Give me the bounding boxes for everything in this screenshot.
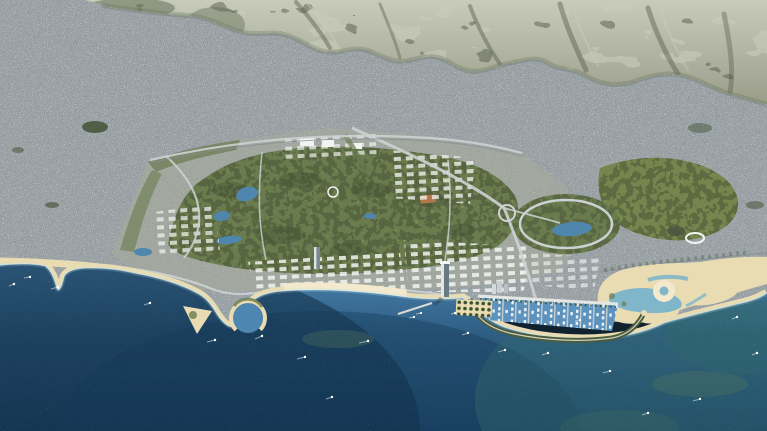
- cove-water: [233, 303, 263, 333]
- lagoon-pond: [660, 287, 669, 296]
- high-rise: [497, 281, 502, 293]
- arena-oval: [667, 226, 685, 236]
- lake: [134, 248, 152, 256]
- tree-cluster: [688, 123, 712, 133]
- tree-cluster: [82, 121, 108, 133]
- high-rise: [492, 284, 496, 294]
- tree-cluster: [746, 201, 764, 209]
- lake: [364, 213, 376, 219]
- scene-canvas: [0, 0, 767, 431]
- tree-cluster: [45, 202, 59, 208]
- tree-cluster: [12, 147, 24, 153]
- tree-cluster: [189, 311, 197, 319]
- tree-cluster: [609, 293, 615, 299]
- tree-cluster: [350, 182, 390, 198]
- riviera-tower-cap: [440, 261, 450, 264]
- aerial-render-coastal-masterplan: [0, 0, 767, 431]
- waterfront-tree-plaza: [456, 299, 493, 317]
- tower-lit-face: [314, 247, 316, 269]
- tree-cluster: [278, 172, 322, 188]
- commercial-blocks: [390, 150, 476, 204]
- residential-blocks: [404, 240, 528, 292]
- residential-blocks: [154, 204, 220, 256]
- large-roof: [300, 138, 314, 146]
- breakwater-head: [641, 310, 647, 316]
- large-roof: [322, 140, 334, 147]
- riviera-tower-lit-face: [441, 263, 444, 297]
- high-rise: [504, 284, 508, 293]
- tree-cluster: [622, 302, 627, 307]
